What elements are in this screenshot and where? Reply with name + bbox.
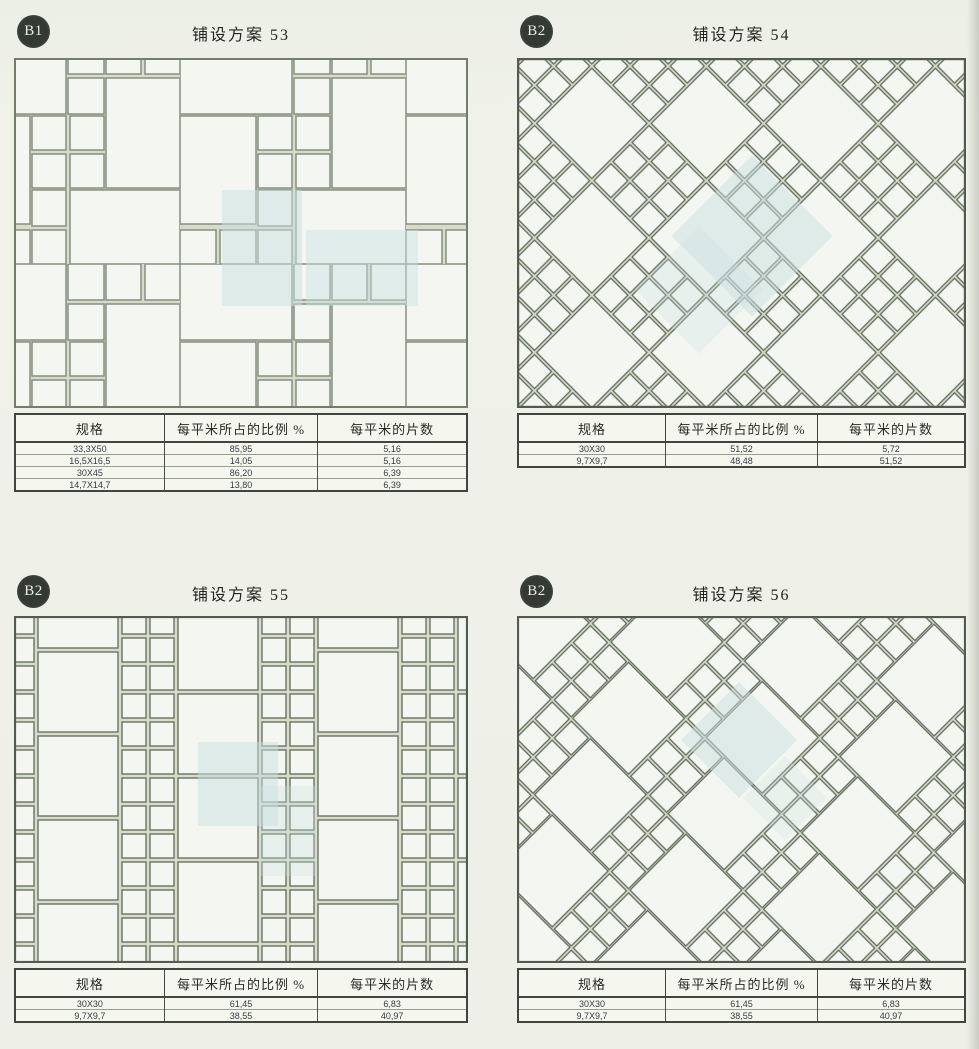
header-spec: 规格	[15, 414, 164, 442]
header-pieces: 每平米的片数	[817, 414, 965, 442]
table-row: 9,7X9,7 38,55 40,97	[15, 1010, 467, 1023]
pieces-cell: 5,16	[318, 442, 467, 455]
ratio-cell: 51,52	[666, 442, 818, 455]
spec-cell: 33,3X50	[15, 442, 164, 455]
table-header-row: 规格 每平米所占的比例 % 每平米的片数	[518, 969, 965, 997]
table-header-row: 规格 每平米所占的比例 % 每平米的片数	[15, 969, 467, 997]
header-ratio: 每平米所占的比例 %	[666, 414, 818, 442]
spec-cell: 9,7X9,7	[518, 455, 666, 468]
spec-cell: 9,7X9,7	[15, 1010, 164, 1023]
table-header-row: 规格 每平米所占的比例 % 每平米的片数	[15, 414, 467, 442]
page-edge-shadow	[967, 0, 979, 1049]
table-row: 30X30 61,45 6,83	[15, 997, 467, 1010]
scheme-title: 铺设方案 56	[517, 581, 966, 605]
pieces-cell: 6,39	[318, 467, 467, 479]
scheme-title: 铺设方案 54	[517, 21, 966, 45]
ratio-cell: 38,55	[666, 1010, 818, 1023]
tile-pattern-diagram-56	[517, 616, 966, 963]
table-row: 9,7X9,7 38,55 40,97	[518, 1010, 965, 1023]
header-spec: 规格	[15, 969, 164, 997]
table-row: 30X30 51,52 5,72	[518, 442, 965, 455]
scheme-block-54: B2 铺设方案 54	[517, 14, 966, 468]
spec-cell: 30X30	[15, 997, 164, 1010]
ratio-cell: 85,95	[164, 442, 318, 455]
table-row: 30X45 86,20 6,39	[15, 467, 467, 479]
ratio-cell: 48,48	[666, 455, 818, 468]
pieces-cell: 51,52	[817, 455, 965, 468]
table-row: 33,3X50 85,95 5,16	[15, 442, 467, 455]
spec-cell: 16,5X16,5	[15, 455, 164, 467]
table-header-row: 规格 每平米所占的比例 % 每平米的片数	[518, 414, 965, 442]
ratio-cell: 13,80	[164, 479, 318, 492]
header-ratio: 每平米所占的比例 %	[164, 969, 318, 997]
pieces-cell: 5,72	[817, 442, 965, 455]
scheme-title: 铺设方案 53	[14, 21, 468, 45]
pieces-cell: 6,83	[318, 997, 467, 1010]
header-pieces: 每平米的片数	[318, 969, 467, 997]
spec-cell: 9,7X9,7	[518, 1010, 666, 1023]
pieces-cell: 6,39	[318, 479, 467, 492]
table-row: 30X30 61,45 6,83	[518, 997, 965, 1010]
tile-pattern-diagram-54	[517, 58, 966, 408]
scheme-block-55: B2 铺设方案 55	[14, 574, 468, 1023]
header-pieces: 每平米的片数	[817, 969, 965, 997]
ratio-cell: 61,45	[666, 997, 818, 1010]
spec-table: 规格 每平米所占的比例 % 每平米的片数 30X30 61,45 6,83 9,…	[14, 968, 468, 1023]
header-ratio: 每平米所占的比例 %	[164, 414, 318, 442]
spec-cell: 14,7X14,7	[15, 479, 164, 492]
spec-cell: 30X30	[518, 442, 666, 455]
spec-table: 规格 每平米所占的比例 % 每平米的片数 30X30 61,45 6,83 9,…	[517, 968, 966, 1023]
scheme-block-53: B1 铺设方案 53	[14, 14, 468, 492]
spec-table: 规格 每平米所占的比例 % 每平米的片数 30X30 51,52 5,72 9,…	[517, 413, 966, 468]
pieces-cell: 40,97	[817, 1010, 965, 1023]
ratio-cell: 61,45	[164, 997, 318, 1010]
header-spec: 规格	[518, 969, 666, 997]
table-row: 16,5X16,5 14,05 5,16	[15, 455, 467, 467]
scheme-title: 铺设方案 55	[14, 581, 468, 605]
ratio-cell: 14,05	[164, 455, 318, 467]
header-pieces: 每平米的片数	[318, 414, 467, 442]
pieces-cell: 6,83	[817, 997, 965, 1010]
scheme-header: B1 铺设方案 53	[14, 14, 468, 58]
spec-cell: 30X45	[15, 467, 164, 479]
scheme-block-56: B2 铺设方案 56	[517, 574, 966, 1023]
tile-pattern-diagram-55	[14, 616, 468, 963]
scheme-header: B2 铺设方案 56	[517, 574, 966, 616]
table-row: 14,7X14,7 13,80 6,39	[15, 479, 467, 492]
spec-cell: 30X30	[518, 997, 666, 1010]
tile-pattern-diagram-53	[14, 58, 468, 408]
header-spec: 规格	[518, 414, 666, 442]
scheme-header: B2 铺设方案 54	[517, 14, 966, 58]
ratio-cell: 86,20	[164, 467, 318, 479]
ratio-cell: 38,55	[164, 1010, 318, 1023]
pieces-cell: 5,16	[318, 455, 467, 467]
header-ratio: 每平米所占的比例 %	[666, 969, 818, 997]
pieces-cell: 40,97	[318, 1010, 467, 1023]
table-row: 9,7X9,7 48,48 51,52	[518, 455, 965, 468]
scheme-header: B2 铺设方案 55	[14, 574, 468, 616]
spec-table: 规格 每平米所占的比例 % 每平米的片数 33,3X50 85,95 5,16 …	[14, 413, 468, 492]
